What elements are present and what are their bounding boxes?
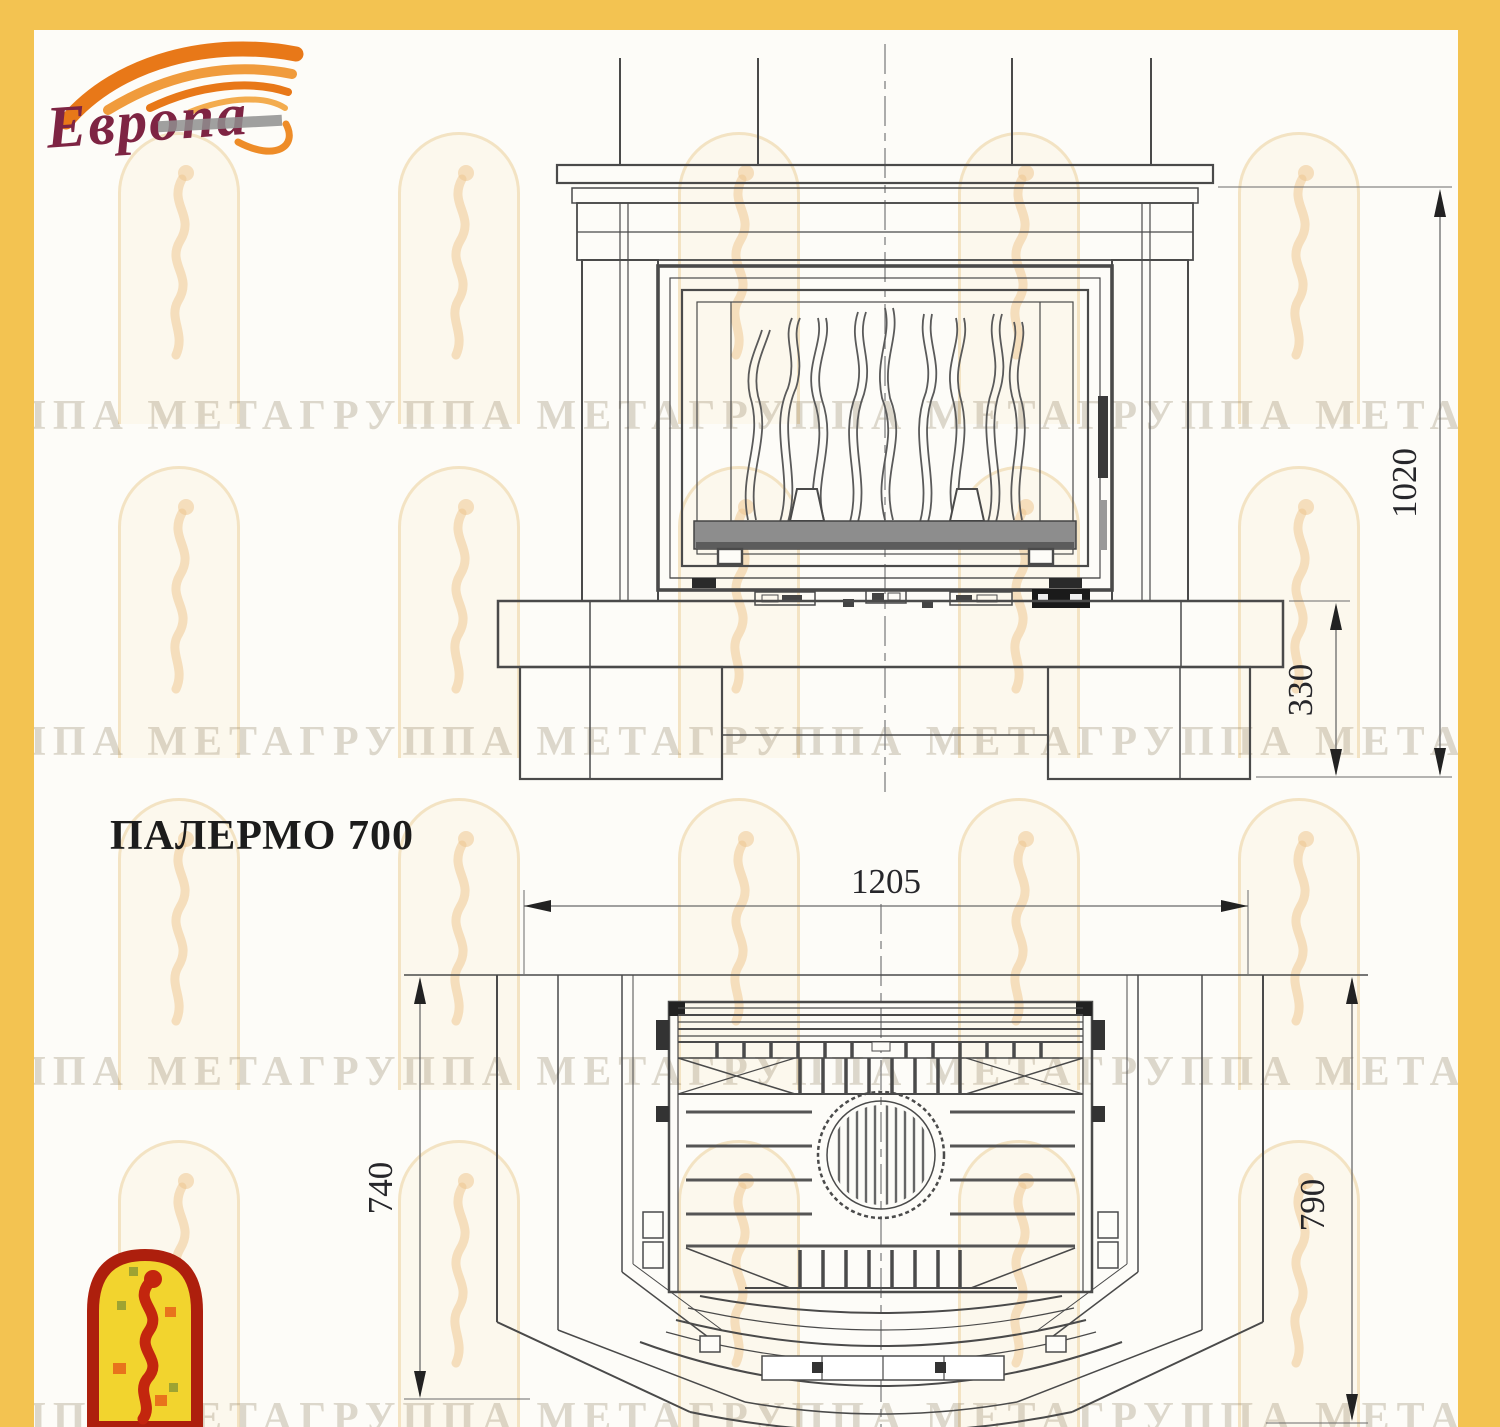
page-border-left	[0, 0, 34, 1427]
product-title: ПАЛЕРМО 700	[110, 812, 414, 860]
dimension-base-height: 330	[1281, 664, 1320, 717]
page-border-right	[1458, 0, 1500, 1427]
brand-logo: Европа	[38, 22, 328, 194]
front-elevation-drawing	[498, 44, 1283, 792]
page: ГРУППА МЕТАГРУППА МЕТАГРУППА МЕТАГРУППА …	[0, 0, 1500, 1427]
dimension-depth-left: 740	[361, 1162, 400, 1215]
control-strip	[755, 589, 1090, 608]
flame-dancer-arch-icon	[85, 1245, 205, 1427]
dimension-depth-right: 790	[1293, 1179, 1332, 1232]
dimension-total-height: 1020	[1385, 448, 1424, 518]
plan-view-drawing	[404, 904, 1368, 1427]
page-border-top	[0, 0, 1500, 30]
technical-drawing: 1020 330	[0, 0, 1500, 1427]
dimension-width: 1205	[851, 862, 921, 901]
